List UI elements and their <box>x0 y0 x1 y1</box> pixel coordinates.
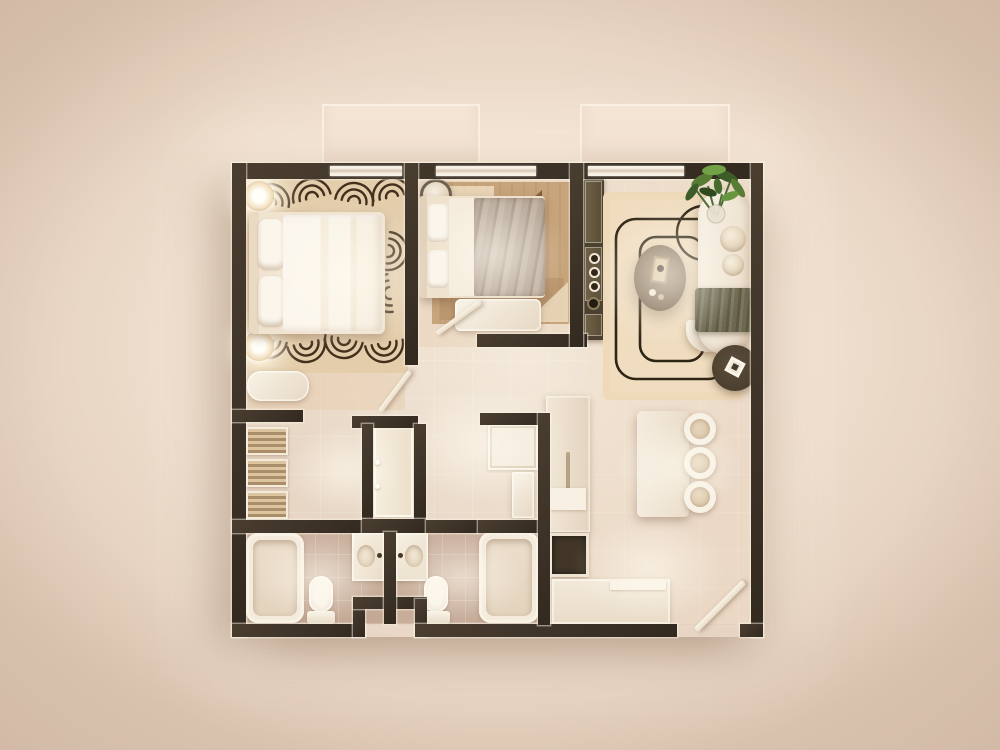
nightstand-lamp-bottom <box>244 331 274 361</box>
closet-shelving <box>246 427 288 519</box>
console-knob <box>589 281 600 292</box>
console-knob <box>589 267 600 278</box>
bedroom-2-bed <box>419 196 545 298</box>
nightstand-lamp-top <box>244 181 274 211</box>
cabinet-handle <box>566 452 570 490</box>
built-in-wardrobe <box>374 426 413 517</box>
hall-storage-box <box>488 424 538 470</box>
master-bed <box>249 212 385 334</box>
wall-wardrobe-south <box>362 519 426 533</box>
vanity-2 <box>396 533 428 581</box>
sink <box>357 545 375 567</box>
wall-wardrobe-right <box>414 424 426 521</box>
master-foot-bench <box>247 371 309 401</box>
balcony-north-east <box>580 104 730 164</box>
oval-coffee-table <box>634 245 686 311</box>
slatted-shelf <box>246 427 288 455</box>
vanity-1 <box>352 533 384 581</box>
dining-chair <box>684 447 716 479</box>
hall-cabinet <box>512 472 534 518</box>
tub-basin <box>486 539 532 616</box>
wall-bedroom-divider <box>405 163 418 365</box>
tub-basin <box>253 540 297 616</box>
slatted-shelf <box>246 459 288 487</box>
toilet-bowl <box>424 576 448 612</box>
table-item <box>658 294 664 300</box>
pillow <box>258 276 284 326</box>
blanket <box>474 198 545 296</box>
duvet <box>283 215 382 331</box>
toilet-bowl <box>309 576 333 612</box>
wardrobe-knob <box>375 484 380 489</box>
wall-wardrobe-left <box>362 424 373 521</box>
kitchen-cabinet-run <box>546 396 590 532</box>
toilet-tank <box>307 611 335 624</box>
wardrobe-knob <box>375 460 380 465</box>
cabinet-drawer <box>550 488 586 510</box>
wall-bath1-north <box>232 520 365 533</box>
window-bedroom2 <box>436 166 536 176</box>
pillow <box>427 250 449 288</box>
olive-throw-blanket <box>695 288 753 332</box>
dining-chair <box>684 413 716 445</box>
counter-backsplash <box>610 581 666 590</box>
wall-kitchen-west <box>538 413 550 625</box>
side-table-tray <box>724 356 746 378</box>
wall-bath-divider <box>384 532 396 624</box>
window-living <box>588 166 684 176</box>
console-knob <box>589 253 600 264</box>
faucet <box>377 553 382 558</box>
tray-item <box>657 265 664 272</box>
wall-south-b <box>415 624 677 637</box>
sofa-cushion <box>722 254 744 276</box>
floorplan-scene <box>0 0 1000 750</box>
slatted-shelf <box>246 491 288 519</box>
wall-master-south-a <box>232 410 303 422</box>
faucet <box>398 553 403 558</box>
bathtub-2 <box>479 532 539 623</box>
wall-east <box>751 163 763 637</box>
balcony-north-west <box>322 104 480 164</box>
window-master <box>330 166 402 176</box>
table-item <box>649 289 656 296</box>
wall-bath2-north-a <box>426 520 478 533</box>
pillow <box>258 219 284 269</box>
wall-bath2-north-b <box>478 520 540 533</box>
wall-living-west <box>570 163 583 347</box>
toilet-1 <box>306 576 337 624</box>
headboard <box>419 196 427 298</box>
console-speaker <box>587 297 600 310</box>
tray-item <box>731 363 739 371</box>
wall-south-a <box>232 624 365 637</box>
wall-west <box>232 163 246 637</box>
pillow <box>427 204 449 242</box>
wall-south-corner <box>740 624 763 637</box>
potted-plant <box>678 156 754 232</box>
cooktop <box>549 533 589 577</box>
bedroom-2-foot-bench <box>455 299 541 331</box>
sink <box>405 545 423 567</box>
dining-chair <box>684 481 716 513</box>
dining-table <box>637 411 689 517</box>
bathtub-1 <box>246 533 304 623</box>
